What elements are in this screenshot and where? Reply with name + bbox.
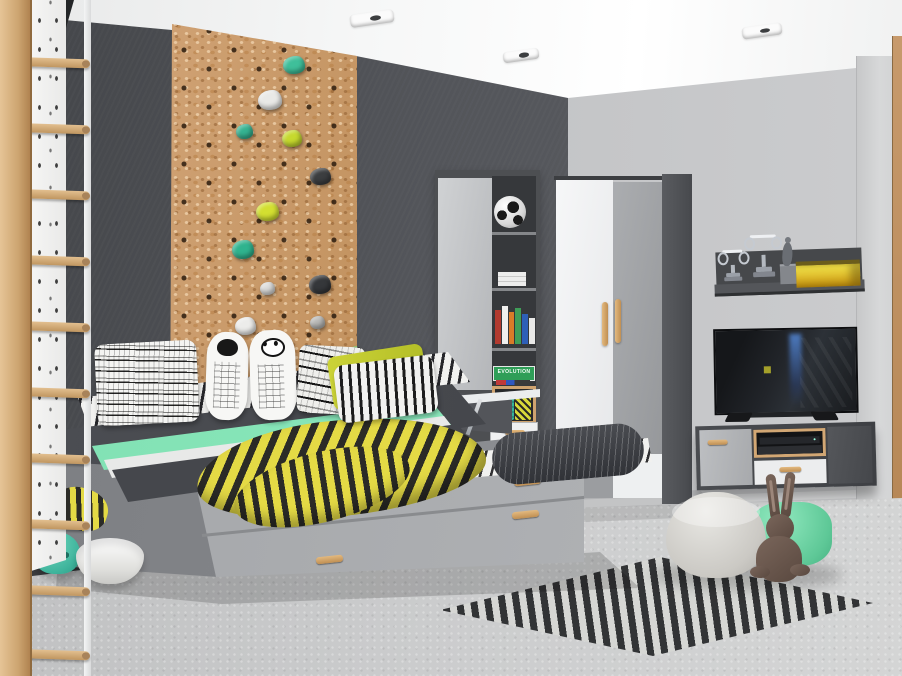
room-photo: EVOLUTION bbox=[0, 0, 902, 676]
gym-ladder-rail bbox=[0, 0, 32, 676]
ladder-rungs-layer bbox=[0, 0, 902, 676]
